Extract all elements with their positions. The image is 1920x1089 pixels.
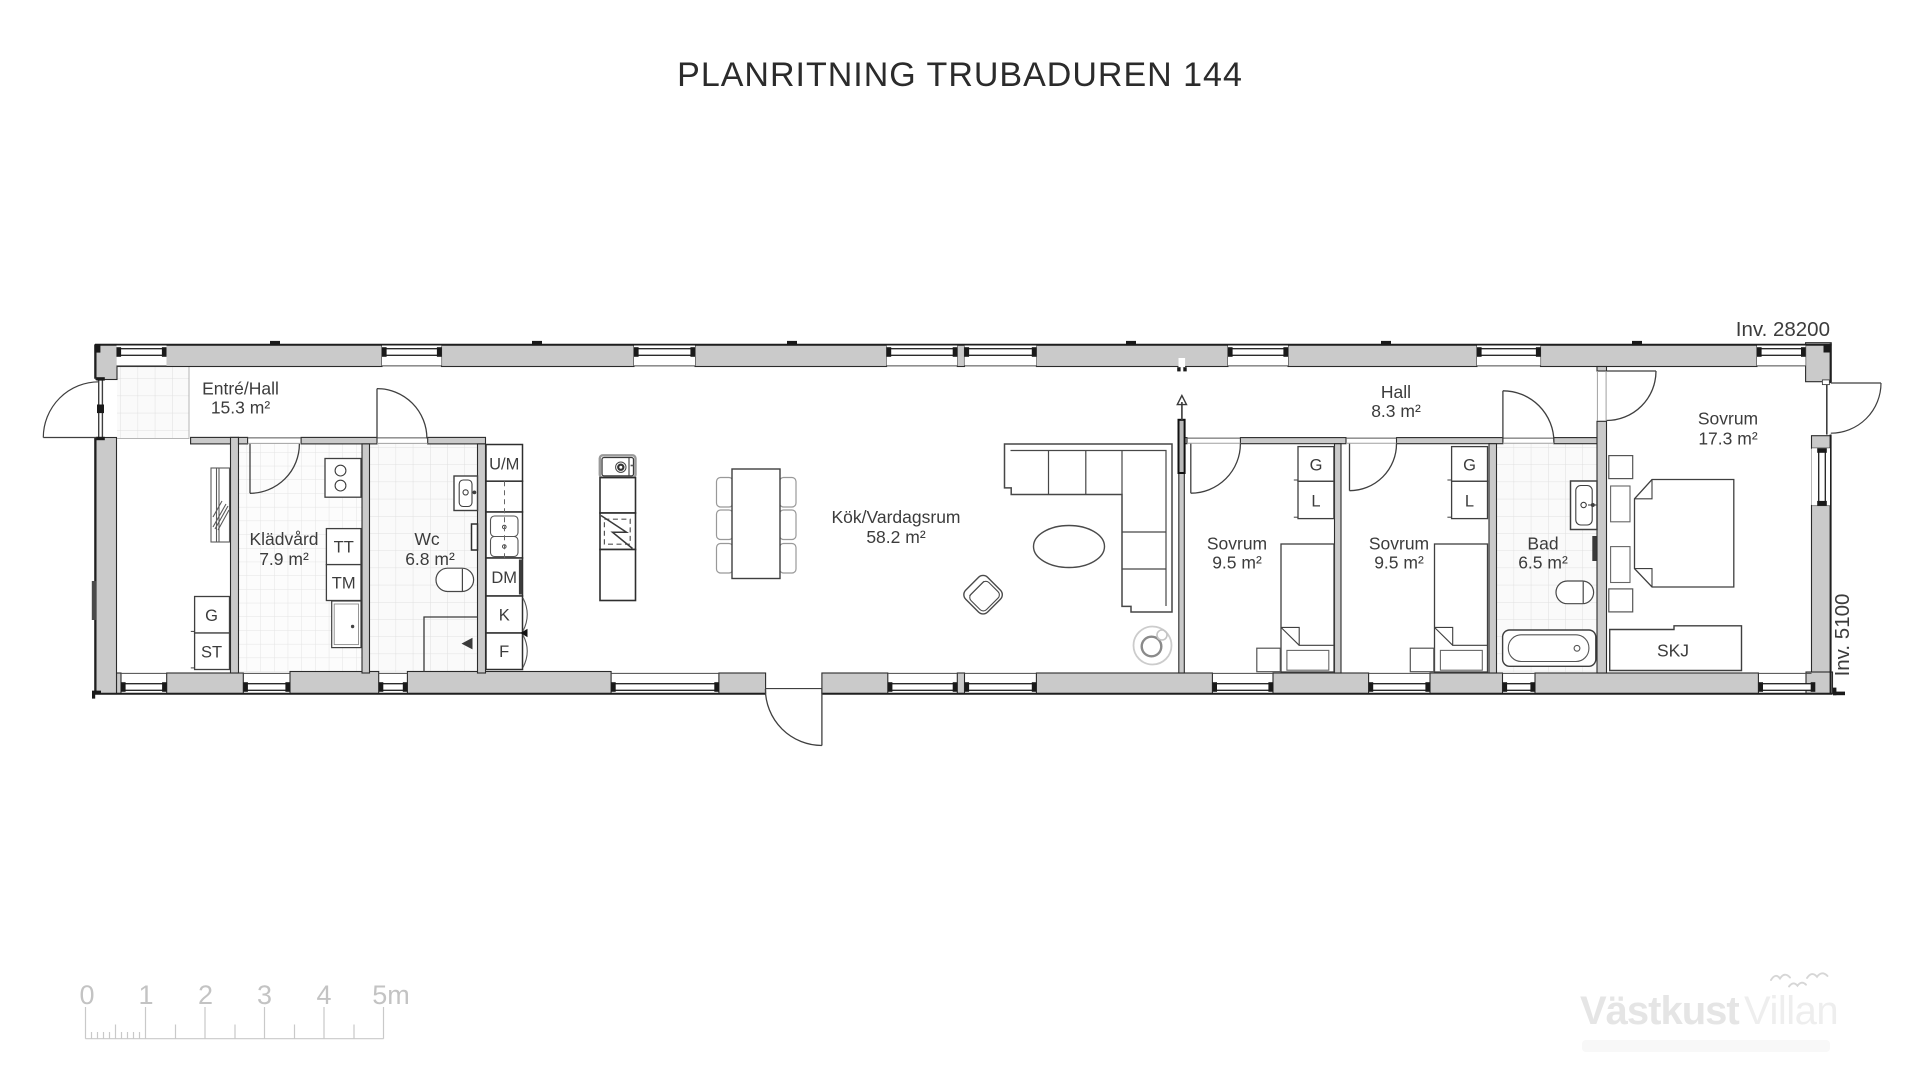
svg-text:15.3 m²: 15.3 m² xyxy=(211,398,270,418)
svg-text:7.9 m²: 7.9 m² xyxy=(259,549,309,569)
svg-text:G: G xyxy=(1310,457,1323,475)
svg-text:0: 0 xyxy=(79,980,94,1010)
svg-text:6.5 m²: 6.5 m² xyxy=(1518,553,1568,573)
svg-text:9.5 m²: 9.5 m² xyxy=(1212,553,1262,573)
svg-text:9.5 m²: 9.5 m² xyxy=(1374,553,1424,573)
svg-text:Västkust: Västkust xyxy=(1580,989,1739,1033)
svg-text:5m: 5m xyxy=(372,980,410,1010)
svg-text:6.8 m²: 6.8 m² xyxy=(405,549,455,569)
svg-text:U/M: U/M xyxy=(489,456,519,474)
svg-text:Inv. 5100: Inv. 5100 xyxy=(1831,594,1854,677)
svg-text:Villan: Villan xyxy=(1744,989,1838,1033)
svg-text:Wc: Wc xyxy=(414,529,440,549)
svg-text:TT: TT xyxy=(334,539,354,557)
svg-text:SKJ: SKJ xyxy=(1657,641,1689,661)
svg-text:Kök/Vardagsrum: Kök/Vardagsrum xyxy=(831,507,960,527)
svg-text:K: K xyxy=(499,607,510,625)
svg-text:8.3 m²: 8.3 m² xyxy=(1371,401,1421,421)
svg-text:Sovrum: Sovrum xyxy=(1698,409,1758,429)
svg-text:G: G xyxy=(1463,457,1476,475)
svg-text:3: 3 xyxy=(257,980,272,1010)
svg-text:G: G xyxy=(205,607,218,625)
svg-text:Sovrum: Sovrum xyxy=(1207,534,1267,554)
svg-text:1: 1 xyxy=(138,980,153,1010)
svg-text:17.3 m²: 17.3 m² xyxy=(1698,429,1757,449)
svg-text:TM: TM xyxy=(332,575,356,593)
svg-text:58.2 m²: 58.2 m² xyxy=(866,527,925,547)
svg-text:Klädvård: Klädvård xyxy=(249,529,318,549)
svg-text:Bad: Bad xyxy=(1527,534,1558,554)
svg-text:4: 4 xyxy=(316,980,331,1010)
svg-text:Hall: Hall xyxy=(1381,382,1411,402)
svg-text:L: L xyxy=(1311,493,1320,511)
svg-text:PLANRITNING TRUBADUREN 144: PLANRITNING TRUBADUREN 144 xyxy=(677,56,1243,94)
svg-text:2: 2 xyxy=(198,980,213,1010)
svg-text:ST: ST xyxy=(201,644,222,662)
svg-text:DM: DM xyxy=(491,569,517,587)
svg-text:Entré/Hall: Entré/Hall xyxy=(202,379,279,399)
svg-text:L: L xyxy=(1465,493,1474,511)
svg-text:F: F xyxy=(499,643,509,661)
svg-text:Sovrum: Sovrum xyxy=(1369,534,1429,554)
svg-text:Inv. 28200: Inv. 28200 xyxy=(1736,318,1830,341)
